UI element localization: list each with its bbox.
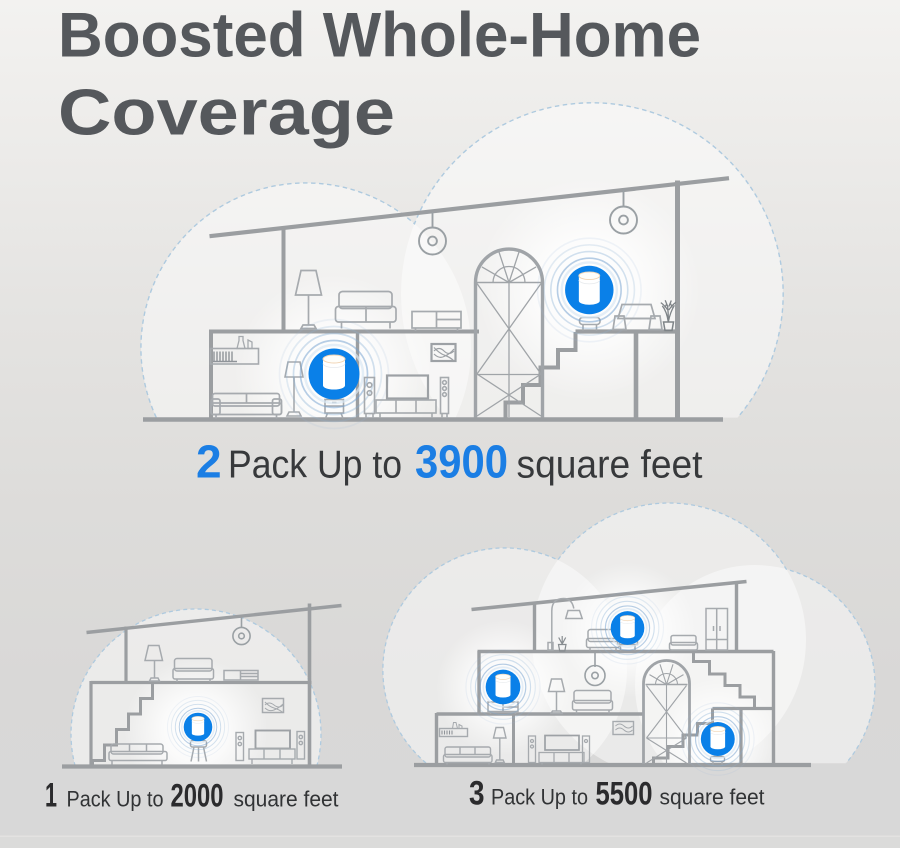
- svg-text:square feet: square feet: [660, 785, 765, 810]
- svg-text:Coverage: Coverage: [58, 76, 395, 149]
- svg-text:2: 2: [196, 436, 222, 488]
- svg-text:3: 3: [469, 775, 485, 813]
- svg-text:Boosted Whole-Home: Boosted Whole-Home: [58, 1, 701, 71]
- svg-text:Pack Up to: Pack Up to: [491, 785, 588, 810]
- svg-text:5500: 5500: [596, 776, 653, 812]
- svg-text:Pack Up to: Pack Up to: [67, 787, 164, 812]
- svg-text:square feet: square feet: [517, 444, 703, 487]
- svg-text:square feet: square feet: [234, 787, 339, 812]
- svg-text:1: 1: [45, 777, 57, 815]
- svg-text:2000: 2000: [171, 778, 224, 814]
- svg-text:Pack Up to: Pack Up to: [228, 444, 402, 487]
- svg-text:3900: 3900: [415, 436, 508, 488]
